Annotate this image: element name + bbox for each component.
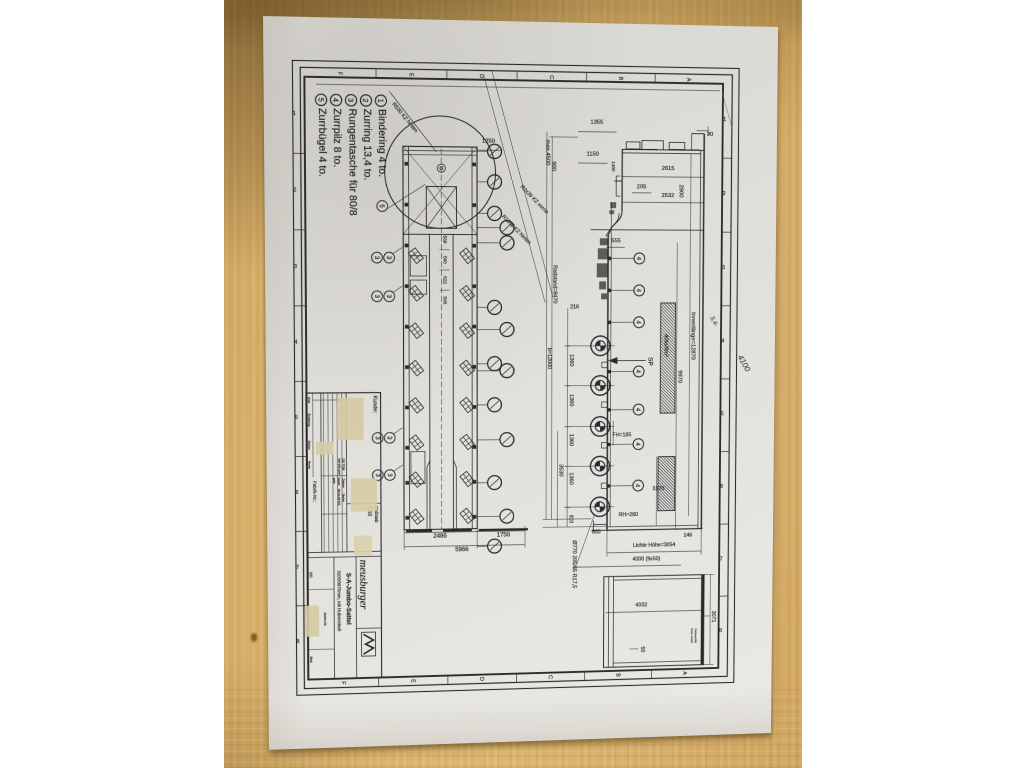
svg-text:SP: SP bbox=[646, 357, 652, 366]
svg-text:Zeichn-Nr.: Zeichn-Nr. bbox=[323, 612, 327, 626]
svg-text:2532: 2532 bbox=[661, 192, 674, 199]
svg-text:Radstand=8470: Radstand=8470 bbox=[551, 265, 557, 303]
svg-text:C: C bbox=[546, 675, 552, 679]
svg-text:568: 568 bbox=[441, 235, 447, 243]
svg-text:622: 622 bbox=[441, 276, 447, 284]
svg-text:Blatt: Blatt bbox=[309, 656, 313, 662]
svg-text:Klebeschild: Klebeschild bbox=[693, 628, 697, 643]
svg-text:596: 596 bbox=[441, 296, 447, 304]
svg-text:fab-stfd gvd--: fab-stfd gvd-- bbox=[337, 458, 341, 476]
svg-text:Fabrik-Nr.:: Fabrik-Nr.: bbox=[311, 481, 317, 502]
svg-text:4: 4 bbox=[634, 369, 640, 373]
svg-text:4: 4 bbox=[635, 288, 641, 292]
svg-text:innen achtn: innen achtn bbox=[690, 628, 694, 643]
svg-text:R2x39 KZ vorne: R2x39 KZ vorne bbox=[518, 184, 548, 215]
svg-text:4: 4 bbox=[635, 256, 641, 260]
svg-text:1: 1 bbox=[376, 98, 385, 102]
svg-text:Rungentasche für 80/8: Rungentasche für 80/8 bbox=[346, 108, 358, 215]
svg-text:8: 8 bbox=[296, 639, 299, 645]
svg-text:4: 4 bbox=[634, 442, 640, 446]
svg-text:1150: 1150 bbox=[586, 150, 599, 157]
svg-text:7: 7 bbox=[719, 556, 722, 562]
svg-text:4: 4 bbox=[294, 339, 298, 345]
svg-text:Name: Name bbox=[341, 493, 345, 501]
svg-text:Datum: Datum bbox=[341, 478, 345, 487]
svg-text:3530: 3530 bbox=[557, 464, 563, 477]
svg-text:A: A bbox=[681, 671, 686, 675]
svg-text:D: D bbox=[478, 74, 484, 78]
svg-text:3071: 3071 bbox=[710, 610, 716, 622]
svg-text:3: 3 bbox=[722, 265, 725, 271]
svg-text:Datum: Datum bbox=[307, 440, 311, 449]
svg-text:2: 2 bbox=[722, 191, 725, 197]
svg-text:Zust: Zust bbox=[307, 397, 311, 403]
svg-text:E: E bbox=[409, 679, 415, 683]
svg-text:max.4500: max.4500 bbox=[544, 139, 551, 165]
svg-text:5: 5 bbox=[294, 415, 297, 421]
svg-text:C: C bbox=[547, 75, 553, 79]
svg-text:4: 4 bbox=[721, 338, 725, 344]
svg-text:4000 (9x50): 4000 (9x50) bbox=[632, 556, 660, 562]
svg-text:2615: 2615 bbox=[661, 165, 674, 172]
svg-text:3: 3 bbox=[373, 436, 380, 440]
svg-text:08.11.93 RS: 08.11.93 RS bbox=[337, 488, 341, 505]
svg-text:3: 3 bbox=[385, 294, 392, 298]
svg-text:Kunde:: Kunde: bbox=[371, 395, 377, 413]
svg-text:4: 4 bbox=[634, 483, 640, 487]
svg-text:560: 560 bbox=[441, 255, 447, 263]
svg-text:9970: 9970 bbox=[676, 370, 682, 383]
svg-text:Ø770 205/65 R17,5: Ø770 205/65 R17,5 bbox=[570, 540, 576, 589]
svg-text:555: 555 bbox=[611, 237, 621, 244]
svg-text:800: 800 bbox=[591, 529, 600, 535]
svg-text:A: A bbox=[685, 77, 691, 81]
svg-text:30: 30 bbox=[706, 131, 713, 138]
svg-text:2486: 2486 bbox=[433, 532, 447, 539]
svg-text:205: 205 bbox=[636, 183, 646, 190]
svg-text:1: 1 bbox=[723, 117, 726, 123]
svg-text:8: 8 bbox=[719, 628, 722, 634]
svg-text:1360: 1360 bbox=[568, 394, 574, 407]
svg-text:Bindering 4 to.: Bindering 4 to. bbox=[375, 108, 387, 176]
svg-text:4100: 4100 bbox=[735, 353, 752, 373]
svg-text:4032: 4032 bbox=[635, 602, 647, 608]
svg-text:3200/9970mm, mit Hubverdeck: 3200/9970mm, mit Hubverdeck bbox=[336, 570, 341, 632]
svg-text:F: F bbox=[336, 71, 342, 75]
svg-text:3170: 3170 bbox=[652, 486, 665, 492]
svg-text:3: 3 bbox=[384, 255, 391, 259]
svg-text:Name: Name bbox=[307, 460, 311, 468]
svg-text:gepr: gepr bbox=[332, 477, 336, 483]
svg-text:7: 7 bbox=[295, 564, 298, 570]
svg-text:b=12000: b=12000 bbox=[546, 347, 552, 368]
svg-text:S-A-Jumbo-Sattel: S-A-Jumbo-Sattel bbox=[344, 572, 351, 624]
svg-text:DB 7708: DB 7708 bbox=[341, 458, 345, 470]
svg-text:3: 3 bbox=[373, 473, 380, 477]
svg-text:3: 3 bbox=[372, 255, 379, 259]
svg-text:F: F bbox=[339, 681, 345, 685]
svg-text:RH=260: RH=260 bbox=[618, 512, 637, 518]
svg-text:3: 3 bbox=[346, 98, 355, 102]
svg-text:1355: 1355 bbox=[590, 118, 603, 125]
svg-text:Innenlänge=12870: Innenlänge=12870 bbox=[689, 312, 696, 360]
svg-text:6: 6 bbox=[720, 484, 723, 490]
svg-text:bearb: bearb bbox=[337, 477, 341, 485]
svg-text:2900: 2900 bbox=[677, 184, 684, 198]
svg-text:Zurring 13,4 to.: Zurring 13,4 to. bbox=[361, 108, 373, 180]
svg-text:5: 5 bbox=[316, 97, 325, 101]
svg-text:1360: 1360 bbox=[567, 433, 573, 446]
svg-text:B: B bbox=[614, 673, 619, 677]
svg-text:40to/4m³: 40to/4m³ bbox=[662, 334, 669, 357]
svg-text:5966: 5966 bbox=[455, 546, 469, 553]
svg-text:Zurrpilz 8 to.: Zurrpilz 8 to. bbox=[331, 108, 343, 167]
svg-text:1: 1 bbox=[292, 111, 295, 117]
svg-text:216: 216 bbox=[570, 304, 579, 310]
svg-text:50: 50 bbox=[639, 646, 644, 652]
svg-text:4: 4 bbox=[634, 407, 640, 411]
svg-text:1400: 1400 bbox=[610, 161, 616, 172]
svg-text:5: 5 bbox=[720, 411, 723, 417]
svg-text:146: 146 bbox=[683, 532, 692, 538]
svg-text:3: 3 bbox=[385, 436, 392, 440]
svg-text:1750: 1750 bbox=[496, 531, 510, 538]
svg-text:1360: 1360 bbox=[567, 472, 573, 485]
svg-text:FH=185: FH=185 bbox=[612, 432, 631, 438]
svg-text:B: B bbox=[617, 76, 623, 80]
svg-text:D: D bbox=[478, 677, 484, 681]
svg-text:E: E bbox=[407, 72, 413, 76]
svg-text:6: 6 bbox=[295, 490, 298, 496]
svg-text:2: 2 bbox=[293, 187, 296, 193]
svg-text:4: 4 bbox=[634, 320, 640, 324]
svg-text:3: 3 bbox=[293, 263, 296, 269]
svg-text:meusburger: meusburger bbox=[357, 559, 369, 609]
svg-text:1360: 1360 bbox=[568, 354, 574, 367]
svg-text:Zurrbügel 4 to.: Zurrbügel 4 to. bbox=[316, 108, 328, 177]
svg-text:5: 5 bbox=[378, 204, 385, 208]
svg-text:Änderung: Änderung bbox=[307, 413, 311, 426]
svg-text:3,4-: 3,4- bbox=[708, 315, 719, 328]
svg-text:3: 3 bbox=[385, 473, 392, 477]
svg-text:Lichte Höhe=3054: Lichte Höhe=3054 bbox=[633, 542, 675, 548]
svg-text:2: 2 bbox=[361, 98, 370, 102]
svg-text:810: 810 bbox=[567, 514, 573, 522]
svg-text:150: 150 bbox=[308, 571, 312, 577]
svg-text:4: 4 bbox=[331, 97, 340, 101]
svg-text:3: 3 bbox=[372, 294, 379, 298]
